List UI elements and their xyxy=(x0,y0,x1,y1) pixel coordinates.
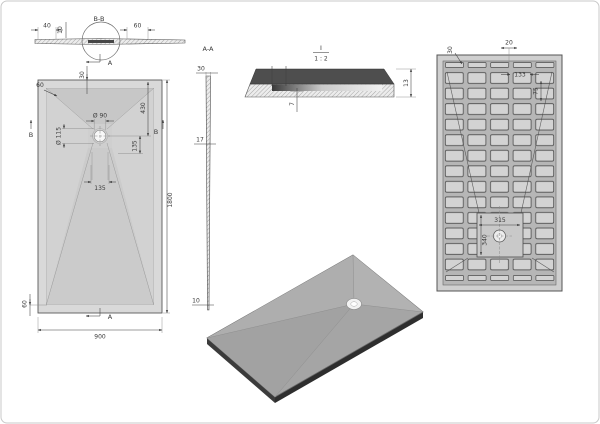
dim-60: 60 xyxy=(134,23,142,30)
dim-bottom-30: 30 xyxy=(447,46,454,54)
detail-top-band xyxy=(250,69,394,84)
cut-label-a-top: A xyxy=(108,59,113,67)
detail-scale: 1 : 2 xyxy=(314,56,328,63)
section-bb-view: B-B 40 10 60 A xyxy=(31,15,185,67)
cut-label-b-right: B xyxy=(154,128,158,136)
isometric-view xyxy=(207,255,423,403)
front-view: 60 30 Ø 90 Ø 115 430 135 135 B xyxy=(22,66,175,341)
side-profile-strip xyxy=(206,76,211,310)
dim-340: 340 xyxy=(482,234,489,246)
dim-side-top: 30 xyxy=(197,66,205,73)
dim-13: 13 xyxy=(403,79,410,87)
dim-75: 75 xyxy=(533,87,540,95)
dim-top-30: 30 xyxy=(79,71,86,79)
section-bb-label: B-B xyxy=(93,15,104,23)
dim-drain-dia: Ø 90 xyxy=(93,113,107,120)
dim-height: 1800 xyxy=(167,192,174,207)
technical-drawing-canvas: B-B 40 10 60 A 60 xyxy=(0,0,600,424)
dim-side-mid: 17 xyxy=(196,137,204,144)
detail-view-i: I 1 : 2 7 13 xyxy=(245,44,416,112)
detail-recess xyxy=(272,85,382,92)
dim-recess-dia: Ø 115 xyxy=(56,127,63,145)
dim-135-right: 135 xyxy=(132,140,139,152)
dim-315: 315 xyxy=(494,217,506,224)
dim-width: 900 xyxy=(94,334,106,341)
dim-10: 10 xyxy=(57,26,64,34)
dim-135-bottom: 135 xyxy=(94,185,106,192)
short-cells-bottom xyxy=(446,276,554,281)
dim-133: 133 xyxy=(514,72,526,79)
dim-side-bottom: 10 xyxy=(192,298,200,305)
dim-430: 430 xyxy=(140,102,147,114)
dim-rim-bottom: 60 xyxy=(22,300,29,308)
bottom-view: 30 20 133 75 315 340 xyxy=(437,40,562,292)
dim-rim-top: 60 xyxy=(36,82,44,89)
detail-label: I xyxy=(320,44,322,52)
dim-7: 7 xyxy=(289,102,296,106)
cut-label-a-bottom: A xyxy=(108,313,113,321)
dim-40: 40 xyxy=(43,23,51,30)
drawing-sheet: B-B 40 10 60 A 60 xyxy=(0,0,600,424)
drain-recess-section xyxy=(88,40,114,43)
dim-bottom-20: 20 xyxy=(505,40,513,47)
side-view-aa: A-A 30 17 10 xyxy=(192,45,218,310)
cut-label-b-left: B xyxy=(29,131,33,139)
side-view-label: A-A xyxy=(203,45,215,53)
